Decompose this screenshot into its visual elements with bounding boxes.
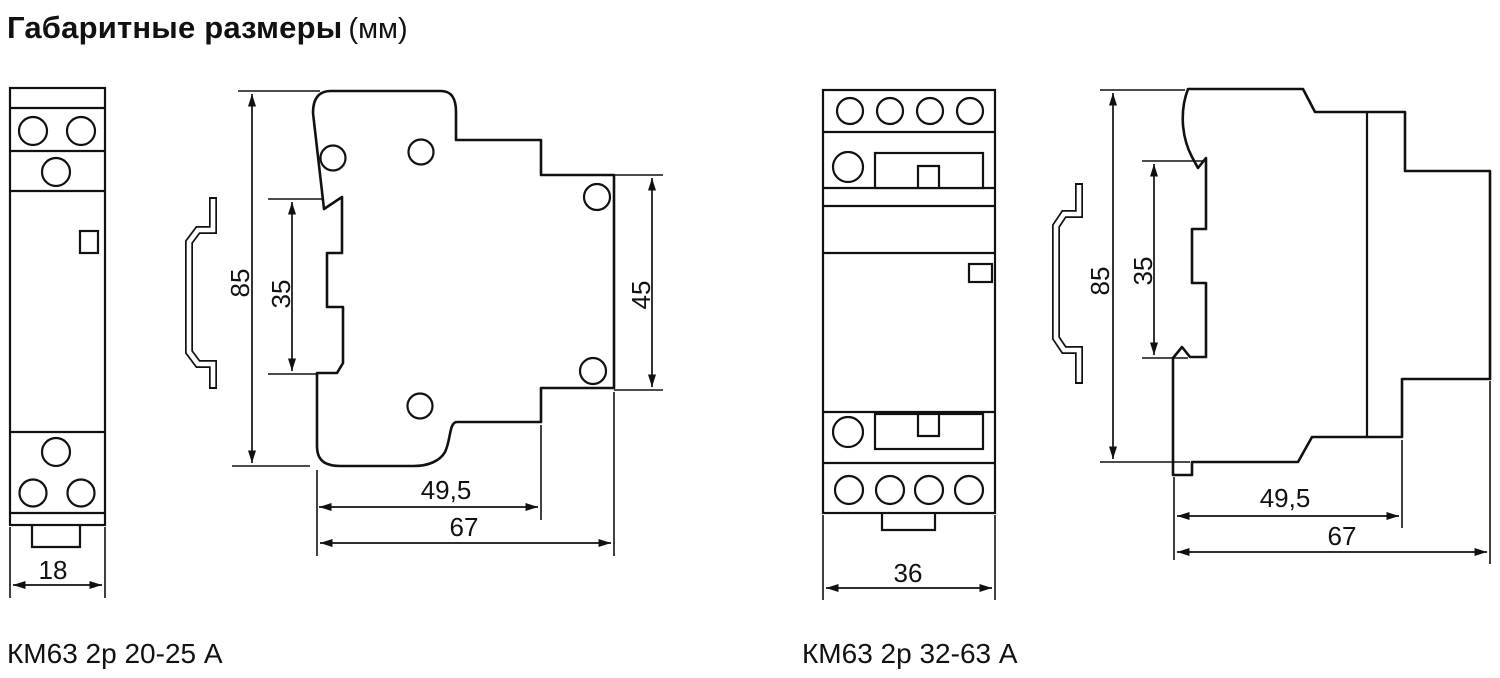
dimension-depth-49-5: 49,5 (421, 475, 472, 505)
indicator-window (80, 231, 98, 253)
din-rail-symbol-right (1056, 184, 1083, 383)
dimension-depth-67: 67 (450, 512, 479, 542)
dimension-din-35: 35 (266, 280, 296, 309)
mounting-hole (580, 358, 606, 384)
bottom-tab (32, 525, 80, 547)
figure-label-km63-32-63: КМ63 2р 32-63 А (802, 638, 1018, 670)
terminal-hole (876, 476, 904, 504)
front-view-km63-32-63: 36 (823, 90, 995, 600)
figure-label-km63-20-25: КМ63 2р 20-25 А (7, 638, 223, 670)
terminal-hole (67, 117, 95, 145)
terminal-hole (42, 158, 70, 186)
indicator-window (969, 264, 992, 282)
terminal-hole (915, 476, 943, 504)
terminal-hole (917, 98, 943, 124)
dimensions-drawing-page: Габаритные размеры(мм) 1 (0, 0, 1500, 678)
side-profile (313, 91, 614, 466)
terminal-hole (68, 480, 95, 507)
terminal-hole (833, 152, 863, 182)
technical-drawing: 18 85 35 (0, 0, 1500, 678)
mounting-hole (409, 140, 434, 165)
terminal-block (875, 153, 983, 188)
dimension-depth-49-5: 49,5 (1260, 483, 1311, 513)
mounting-hole (584, 184, 610, 210)
terminal-hole (835, 476, 863, 504)
side-view-km63-20-25 (313, 91, 614, 466)
din-rail-symbol-left (189, 198, 217, 388)
dimension-width-36: 36 (894, 558, 923, 588)
mounting-hole (321, 146, 346, 171)
terminal-hole (837, 98, 863, 124)
mounting-hole (408, 394, 433, 419)
side-view-km63-32-63 (1173, 89, 1490, 475)
side-profile (1173, 89, 1490, 475)
terminal-hole (957, 98, 983, 124)
bottom-tab (882, 513, 935, 530)
dimension-height-85: 85 (1085, 267, 1115, 296)
dimension-din-35: 35 (1128, 257, 1158, 286)
front-view-km63-20-25: 18 (10, 88, 105, 598)
terminal-hole (833, 417, 863, 447)
terminal-hole (877, 98, 903, 124)
terminal-hole (42, 438, 70, 466)
dimension-width-18: 18 (39, 555, 68, 585)
dimension-depth-67: 67 (1328, 521, 1357, 551)
dimension-45: 45 (626, 281, 656, 310)
terminal-block (875, 414, 983, 449)
terminal-hole (19, 117, 47, 145)
terminal-hole (20, 480, 47, 507)
terminal-hole (955, 476, 983, 504)
dimension-height-85: 85 (225, 269, 255, 298)
